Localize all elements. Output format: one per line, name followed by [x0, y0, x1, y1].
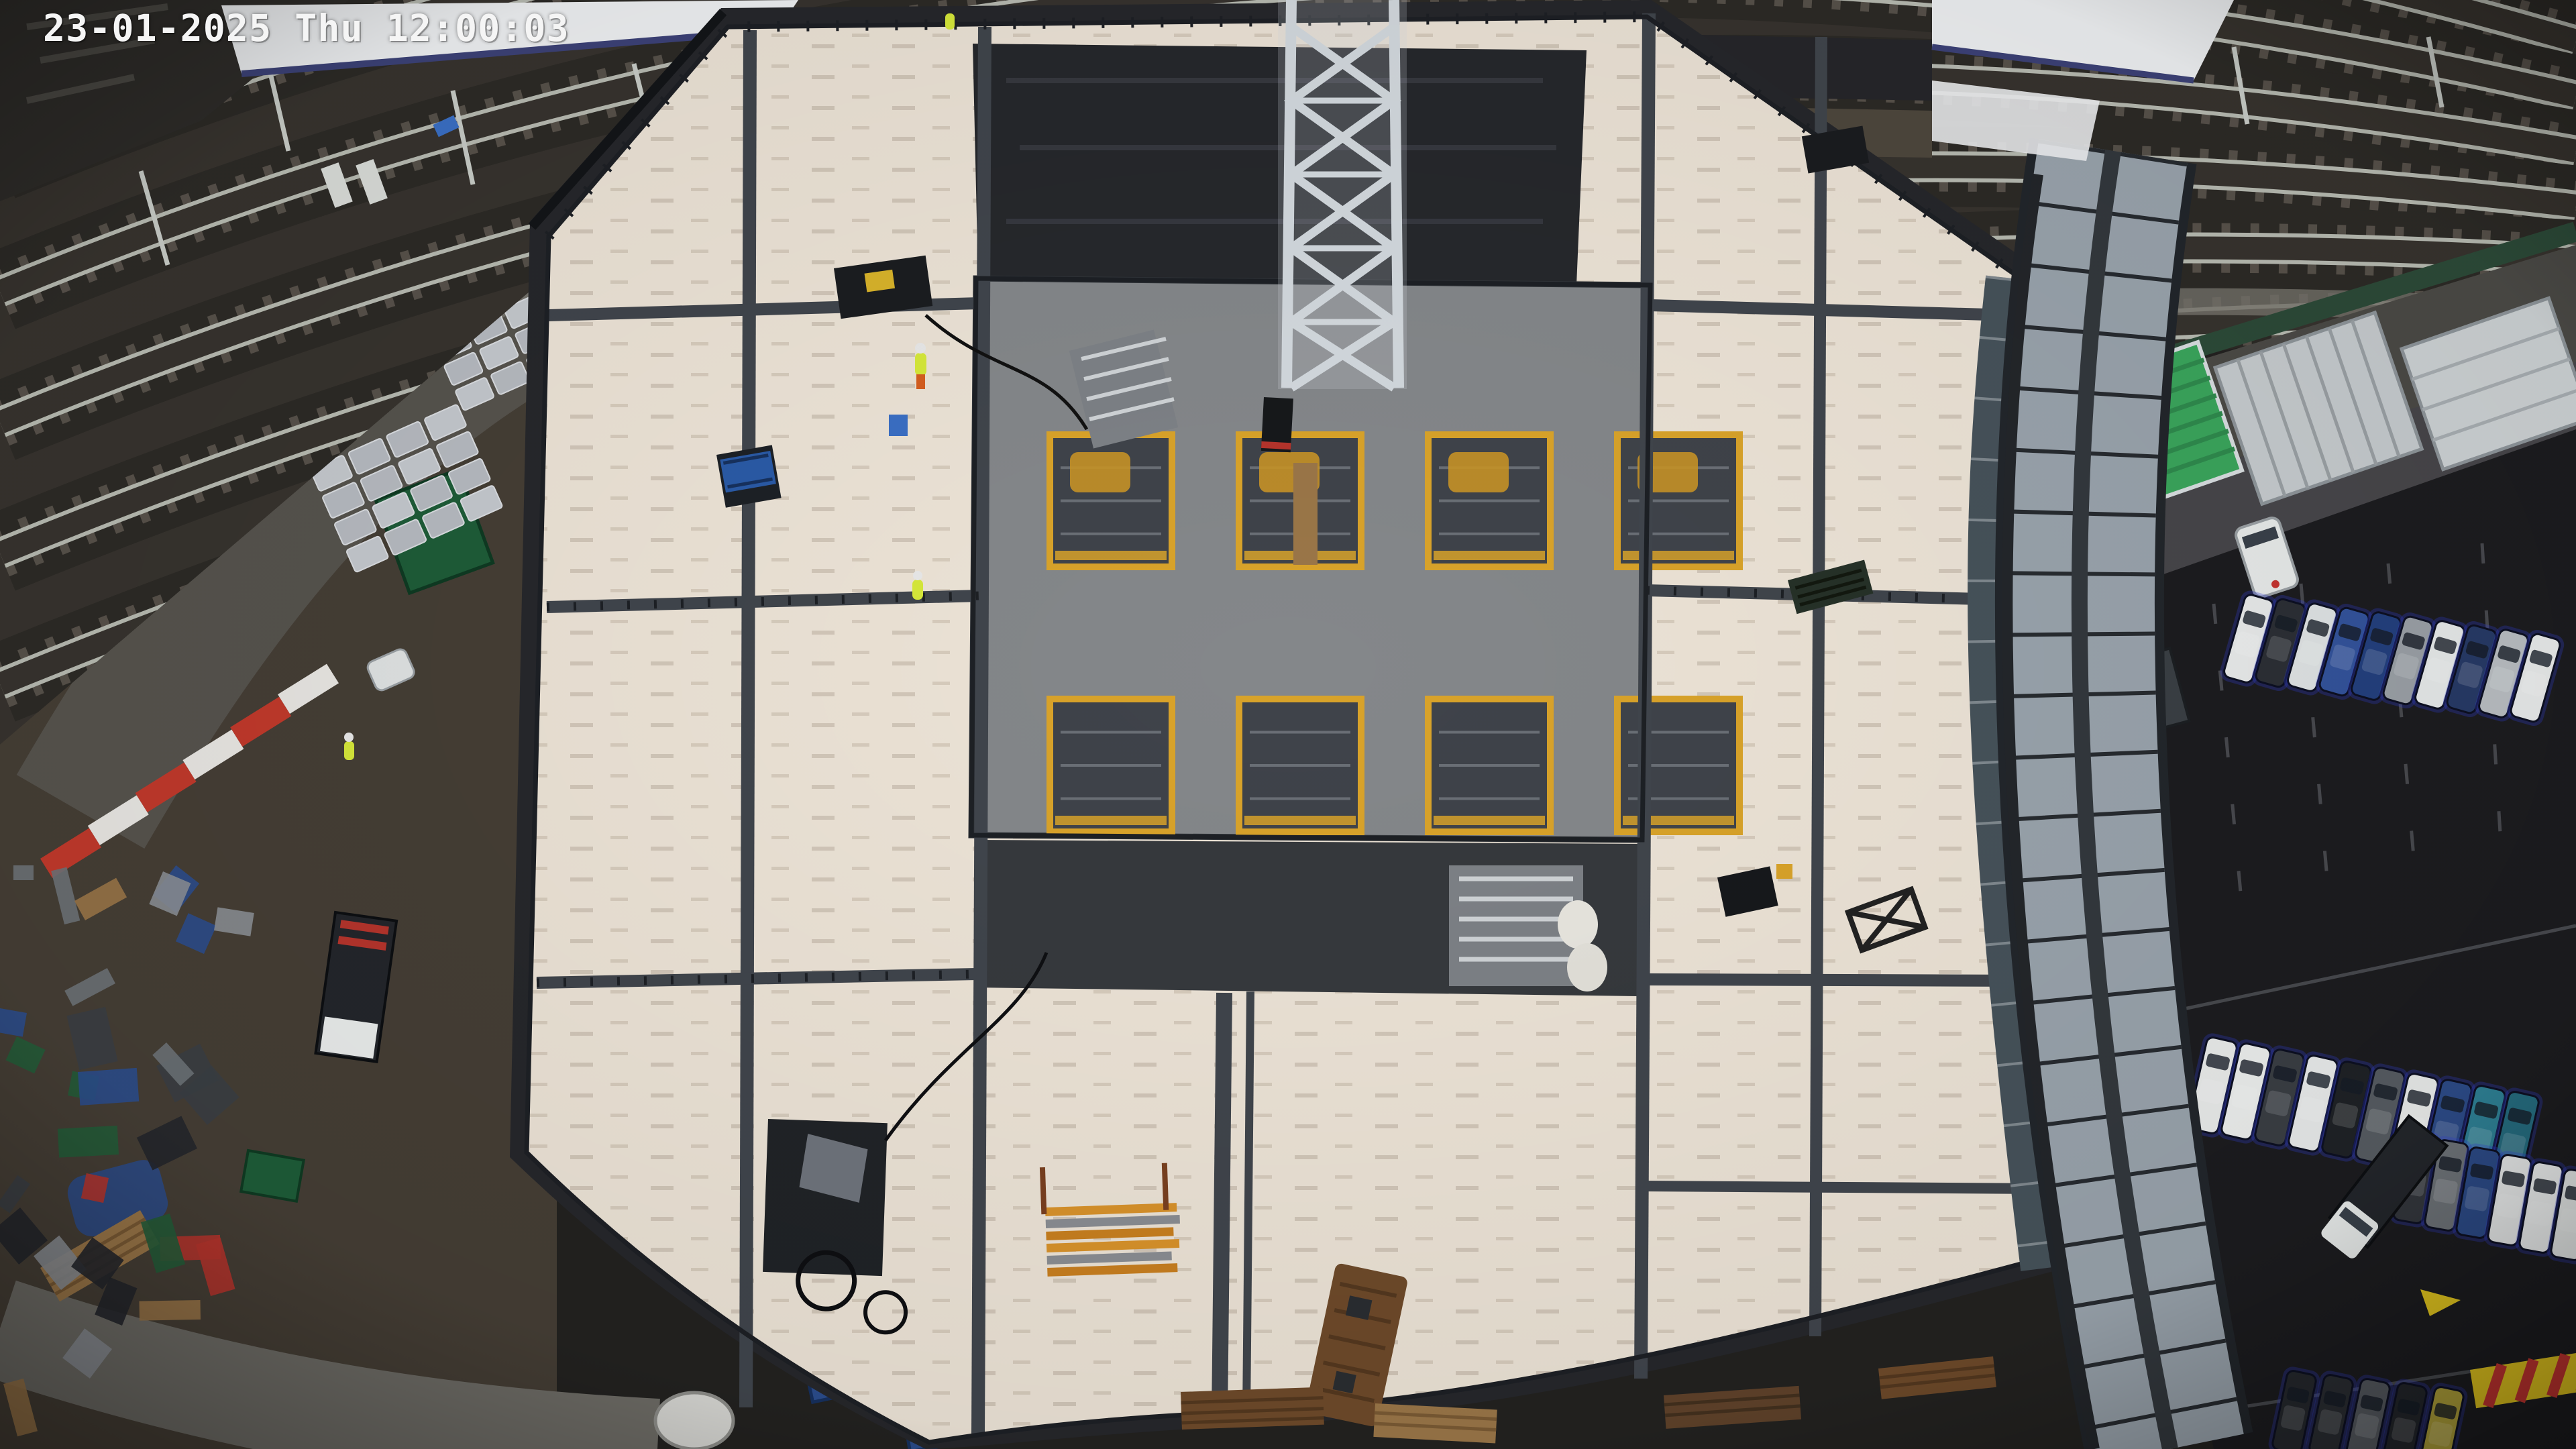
- cctv-frame: 23-01-2025 Thu 12:00:03: [0, 0, 2576, 1449]
- timestamp-overlay: 23-01-2025 Thu 12:00:03: [43, 7, 570, 50]
- lens-vignette: [0, 0, 2576, 1449]
- site-scene: [0, 0, 2576, 1449]
